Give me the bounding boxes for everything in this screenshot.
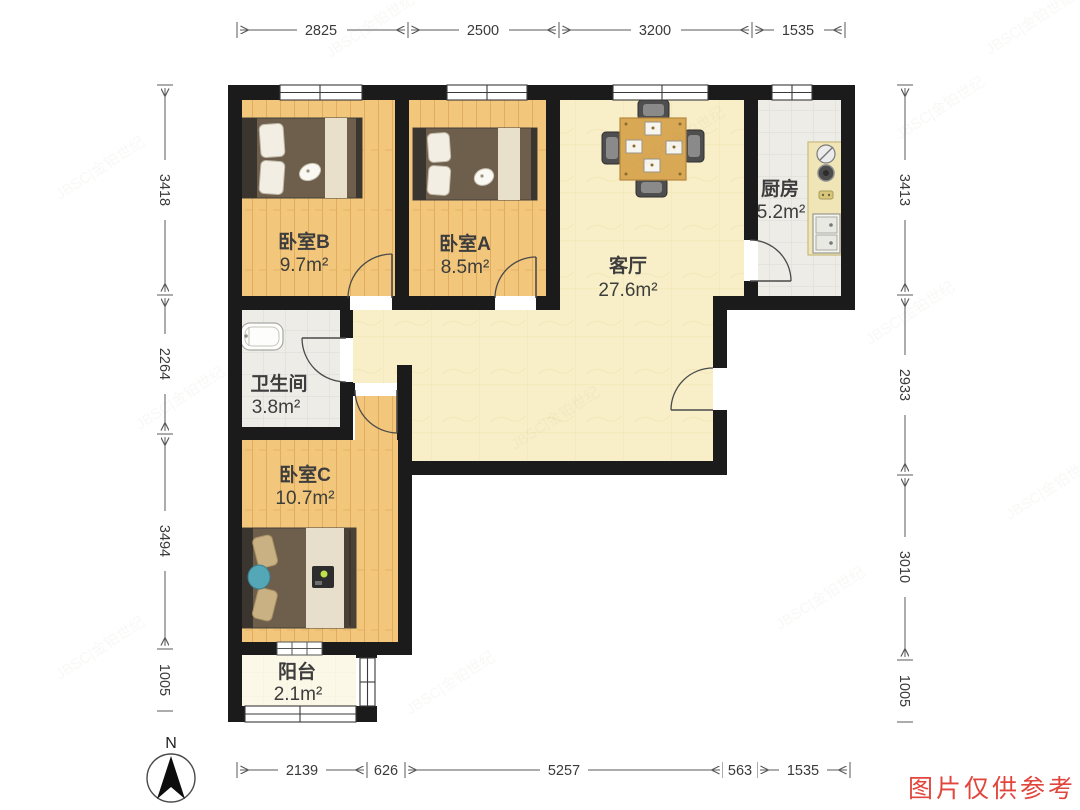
living-room-label: 客厅 [609,254,647,277]
entrance-door-opening [713,368,727,410]
watermark: JBSC|金铂世纪 [53,133,148,203]
dim-left-4: 1005 [156,664,172,696]
dim-left-3: 3494 [156,525,172,557]
balcony-slider-door [277,642,322,655]
bedroom-b-area: 9.7m² [280,255,329,276]
watermark: JBSC|金铂世纪 [1003,453,1080,523]
dim-bottom-4: 563 [728,763,752,779]
dim-right-1: 3413 [896,174,912,206]
bedroom-c-label: 卧室C [279,463,331,486]
bed-c-icon [240,528,356,628]
window-bedroom-b [280,85,362,100]
dim-left-2: 2264 [156,348,172,380]
dim-top-2: 2500 [467,23,499,39]
bedroom-c-area: 10.7m² [275,488,334,509]
kitchen-label: 厨房 [761,177,799,200]
bedroom-a-label: 卧室A [439,232,491,255]
floor-plan-svg: 卧室B 9.7m² 卧室A 8.5m² 客厅 27.6m² 厨房 5.2m² 卫… [0,0,1080,810]
watermark: JBSC|金铂世纪 [53,613,148,683]
balcony-label: 阳台 [278,660,316,683]
dim-bottom-3: 5257 [548,763,580,779]
watermark: JBSC|金铂世纪 [893,73,988,143]
dim-top-3: 3200 [639,23,671,39]
window-balcony-bottom [245,706,356,722]
watermark: JBSC|金铂世纪 [983,0,1078,58]
floor-plan-image: 卧室B 9.7m² 卧室A 8.5m² 客厅 27.6m² 厨房 5.2m² 卫… [0,0,1080,810]
bed-a-icon [413,128,537,200]
watermark: JBSC|金铂世纪 [863,278,958,348]
dim-bottom-1: 2139 [286,763,318,779]
reference-only-notice: 图片仅供参考 [908,775,1076,803]
balcony-area: 2.1m² [274,684,323,705]
bathroom-door-opening [340,338,353,382]
dim-bottom-5: 1535 [787,763,819,779]
dim-right-3: 3010 [896,551,912,583]
window-kitchen [772,85,812,100]
window-bedroom-a [447,85,527,100]
dim-top-4: 1535 [782,23,814,39]
bathroom-area: 3.8m² [252,397,301,418]
kitchen-door-opening [744,240,758,281]
bedroom-a-door-opening [495,296,536,310]
living-room-area: 27.6m² [598,280,657,301]
bedroom-b-label: 卧室B [278,230,330,253]
watermark: JBSC|金铂世纪 [133,363,228,433]
dim-left-1: 3418 [156,174,172,206]
dim-right-4: 1005 [896,675,912,707]
bathtub-icon [241,323,283,350]
bedroom-b-door-opening [350,296,392,310]
watermark: JBSC|金铂世纪 [773,563,868,633]
dim-right-2: 2933 [896,369,912,401]
bathroom-label: 卫生间 [250,372,307,395]
kitchen-counter-icon [808,142,842,255]
north-compass-icon: N [147,735,195,802]
compass-north-label: N [165,735,177,752]
dim-top-1: 2825 [305,23,337,39]
watermark: JBSC|金铂世纪 [403,648,498,718]
kitchen-area: 5.2m² [757,202,806,223]
window-balcony-right [360,658,375,706]
bedroom-c-door-opening [355,383,397,396]
window-living [613,85,708,100]
bed-b-icon [242,118,362,198]
dim-bottom-2: 626 [374,763,398,779]
bedroom-a-area: 8.5m² [441,257,490,278]
